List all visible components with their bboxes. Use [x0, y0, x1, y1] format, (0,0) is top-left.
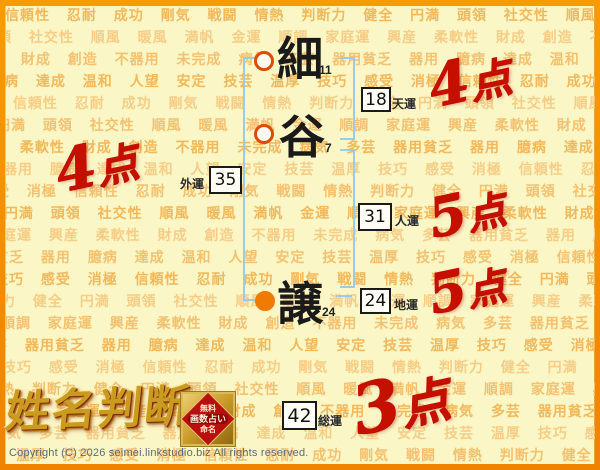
surname-char1-circle-icon: [254, 51, 274, 71]
watermark-row: 信頼性 忍耐 成功 剛気 戦闘 情熱 判断力 健全 円満 頭領 社交性 順風 暖…: [5, 6, 595, 26]
person-luck-value-box: 31: [358, 203, 392, 231]
name-char-1: 細: [277, 36, 323, 82]
badge-line3: 命名: [200, 425, 216, 434]
copyright-text: Copyright (C) 2026 seimei.linkstudio.biz…: [9, 447, 309, 459]
stroke-count-1: 11: [319, 63, 332, 77]
heaven-luck-label: 天運: [392, 95, 416, 112]
earth-luck-connector: [336, 295, 352, 297]
watermark-row: 器用貧乏 器用 臆病 達成 温和 人望 安定 技芸 温厚 技巧 感受 消極 信頼…: [5, 246, 595, 268]
badge-line1: 無料: [200, 404, 216, 413]
outer-luck-value-box: 35: [209, 166, 242, 194]
givenname-char-circle-icon: [255, 291, 275, 311]
name-char-2: 谷: [279, 114, 325, 160]
surname-char2-circle-icon: [254, 124, 274, 144]
name-char-3: 譲: [277, 281, 323, 327]
watermark-row: 多芸 器用貧乏 器用 臆病 達成 温和 人望 安定 技芸 温厚 技巧 感受 消極…: [5, 334, 595, 356]
person-luck-bracket: [340, 149, 355, 288]
badge-text: 無料 画数占い 命名: [181, 392, 235, 446]
outer-luck-bracket: [243, 57, 258, 301]
earth-luck-label: 地運: [394, 296, 418, 313]
site-logo[interactable]: 姓名判断: [3, 383, 193, 438]
free-naming-badge[interactable]: 無料 画数占い 命名: [180, 391, 236, 447]
outer-luck-label: 外運: [180, 175, 204, 192]
heaven-luck-bracket: [340, 57, 355, 140]
heaven-luck-value-box: 18: [361, 87, 391, 112]
page-frame: 信頼性 忍耐 成功 剛気 戦闘 情熱 判断力 健全 円満 頭領 社交性 順風 暖…: [0, 0, 600, 470]
stroke-count-2: 7: [325, 141, 332, 155]
total-luck-label: 総運: [318, 412, 342, 429]
stroke-count-3: 24: [322, 305, 335, 319]
watermark-row: 温厚 技巧 感受 消極 信頼性 忍耐 成功 剛気 戦闘 情熱 判断力 健全 円満…: [5, 356, 595, 378]
badge-line2: 画数占い: [188, 414, 228, 424]
total-luck-value-box: 42: [282, 401, 317, 430]
earth-luck-value-box: 24: [360, 288, 391, 314]
person-luck-label: 人運: [395, 212, 419, 229]
